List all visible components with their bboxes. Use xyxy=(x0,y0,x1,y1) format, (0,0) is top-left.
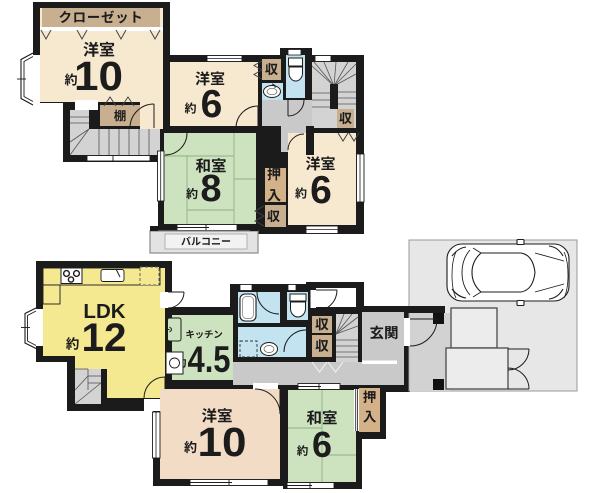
svg-text:4.5: 4.5 xyxy=(188,339,231,380)
svg-text:10: 10 xyxy=(74,53,123,99)
svg-text:6: 6 xyxy=(310,169,332,212)
svg-text:6: 6 xyxy=(201,83,223,126)
svg-text:8: 8 xyxy=(200,168,221,210)
svg-text:6: 6 xyxy=(312,424,332,465)
svg-text:12: 12 xyxy=(82,316,127,360)
svg-text:10: 10 xyxy=(198,419,247,465)
